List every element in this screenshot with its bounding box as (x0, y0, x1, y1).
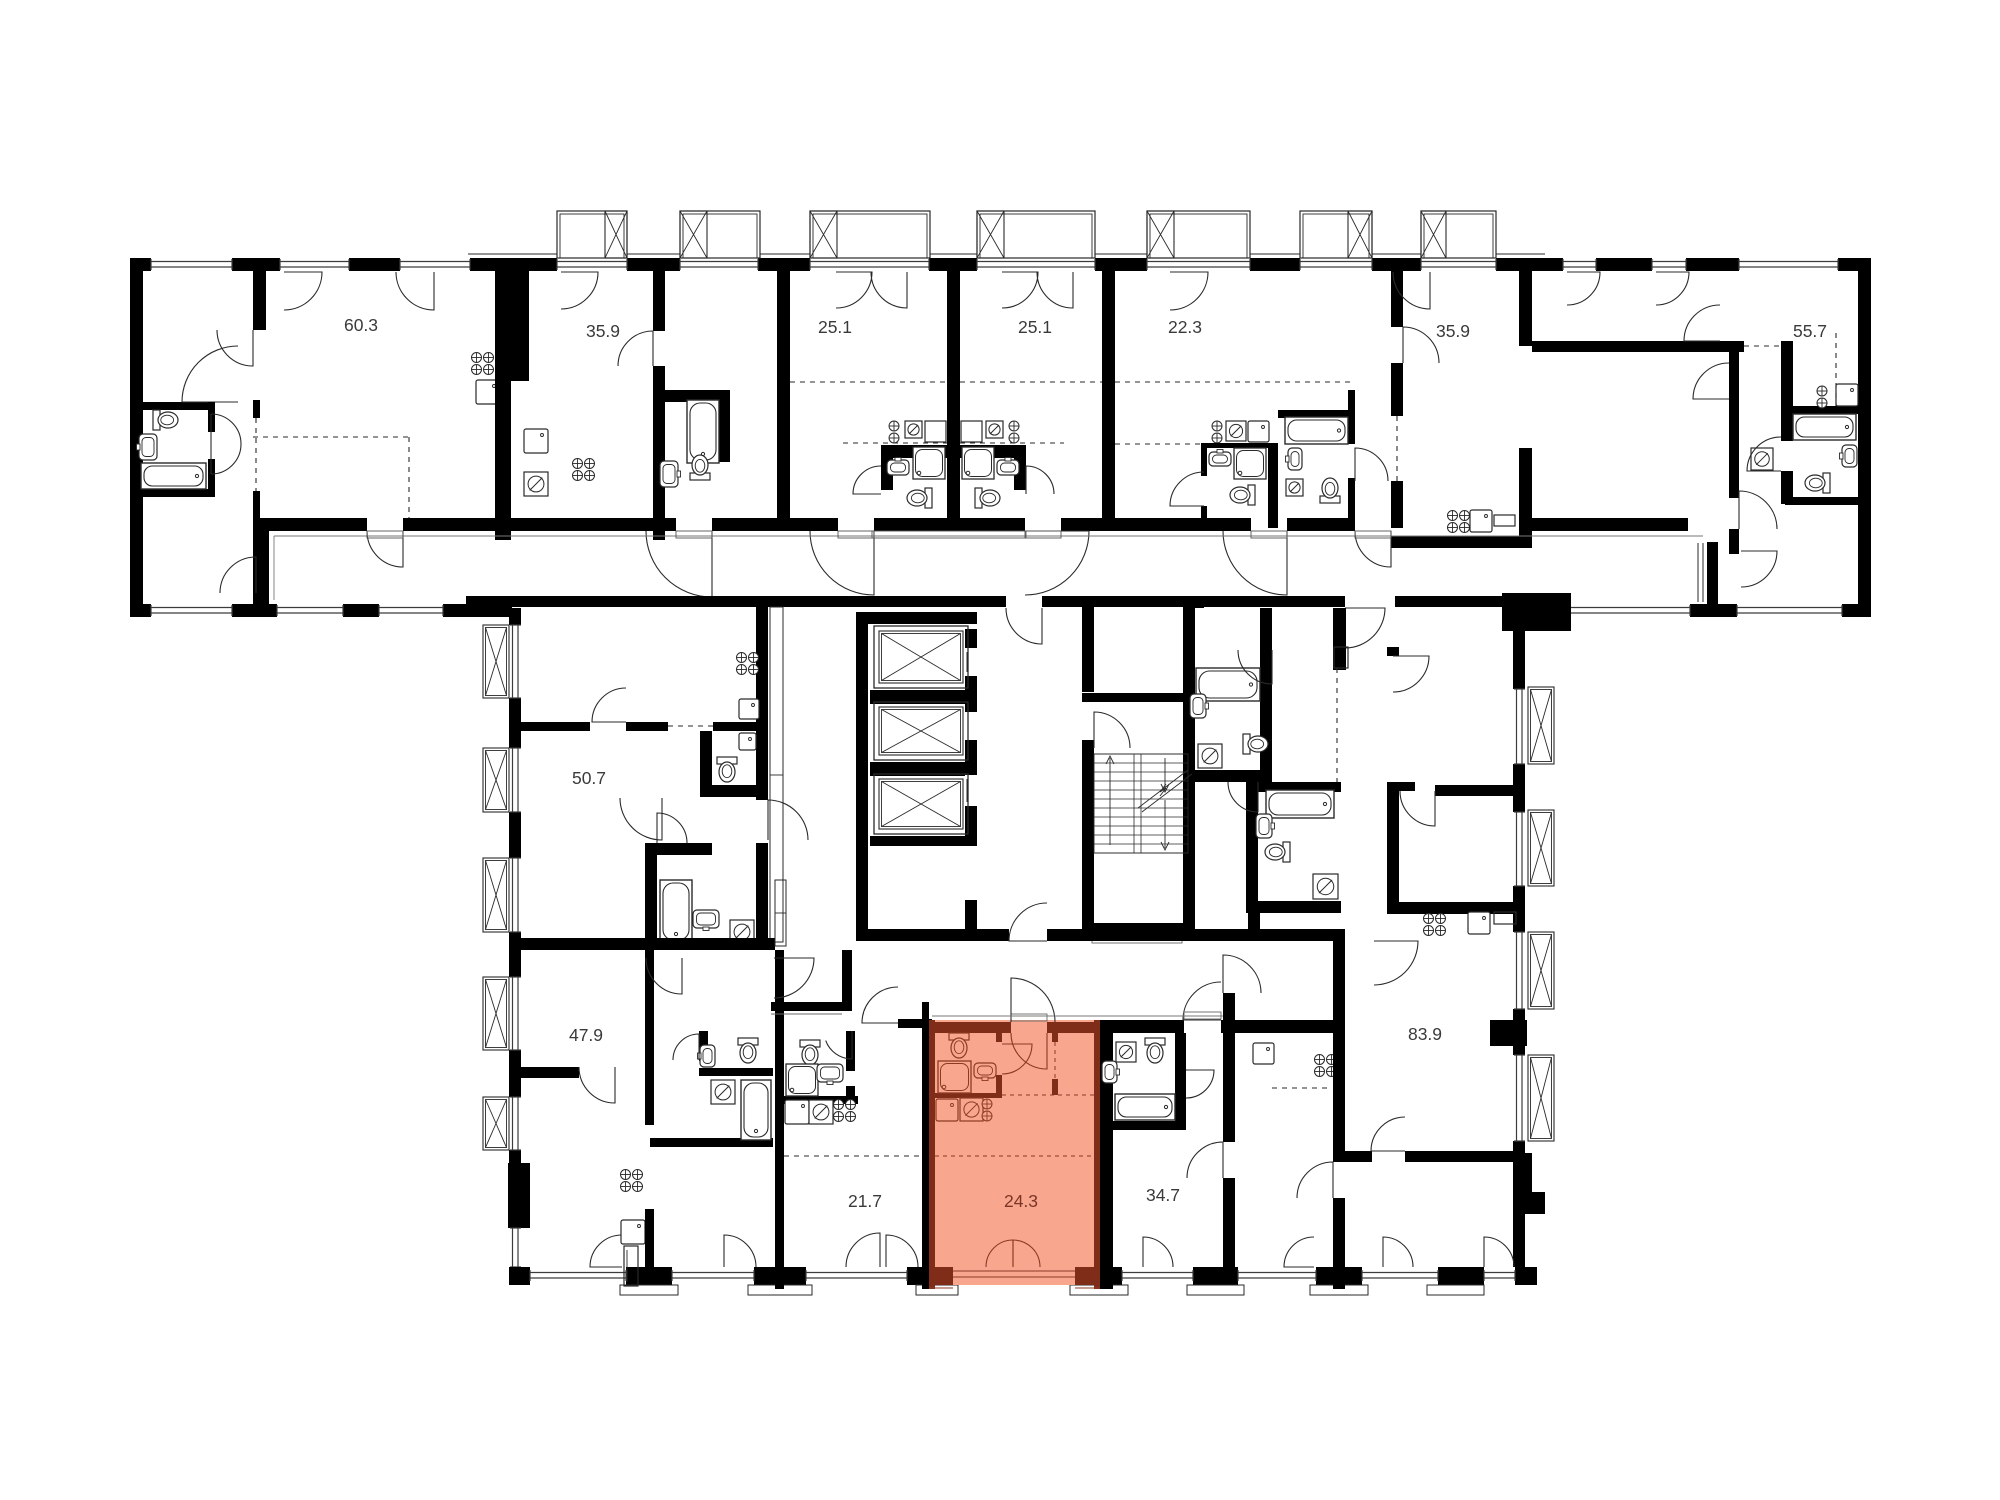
svg-text:47.9: 47.9 (569, 1025, 603, 1045)
svg-text:25.1: 25.1 (818, 317, 852, 337)
svg-text:60.3: 60.3 (344, 315, 378, 335)
svg-text:24.3: 24.3 (1004, 1191, 1038, 1211)
svg-text:34.7: 34.7 (1146, 1185, 1180, 1205)
svg-text:35.9: 35.9 (1436, 321, 1470, 341)
svg-text:25.1: 25.1 (1018, 317, 1052, 337)
svg-text:22.3: 22.3 (1168, 317, 1202, 337)
svg-text:50.7: 50.7 (572, 768, 606, 788)
svg-text:35.9: 35.9 (586, 321, 620, 341)
svg-text:55.7: 55.7 (1793, 321, 1827, 341)
svg-text:83.9: 83.9 (1408, 1024, 1442, 1044)
svg-text:21.7: 21.7 (848, 1191, 882, 1211)
